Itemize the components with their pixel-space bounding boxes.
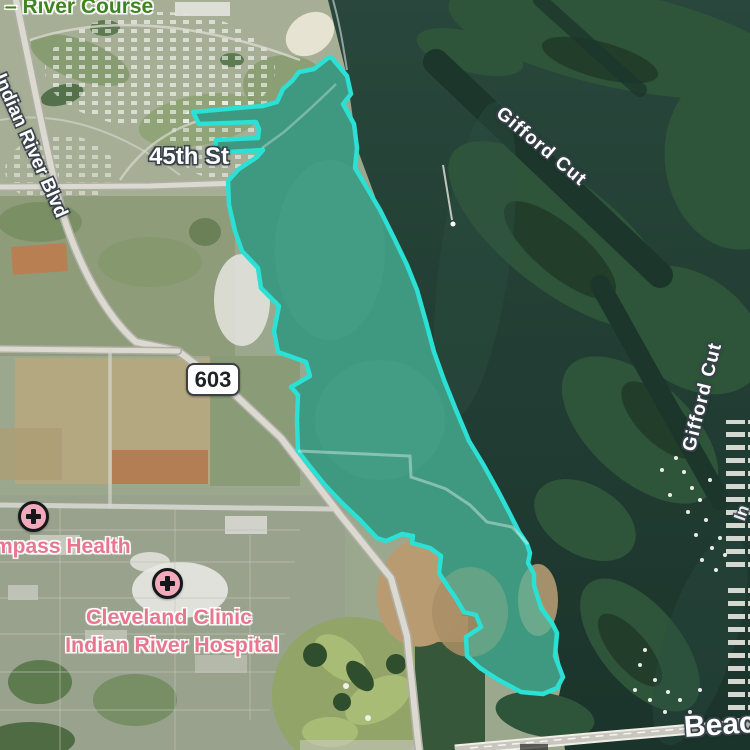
road-label-45th-st: 45th St (149, 144, 229, 169)
route-shield-603: 603 (186, 363, 240, 396)
poi-label-cleveland-clinic[interactable]: Cleveland Clinic (86, 606, 252, 629)
road-label-beach: Beach (683, 706, 750, 744)
hospital-cross-icon[interactable] (152, 568, 183, 599)
golf-course-label: – River Course (5, 0, 153, 18)
poi-label-compass-health[interactable]: Compass Health (0, 536, 131, 558)
poi-label-indian-river-hospital[interactable]: Indian River Hospital (65, 634, 279, 657)
satellite-map[interactable]: – River Course Indian River Blvd 45th St… (0, 0, 750, 750)
cross-bar (31, 509, 36, 524)
cross-bar (165, 576, 170, 591)
hospital-cross-icon[interactable] (18, 501, 49, 532)
